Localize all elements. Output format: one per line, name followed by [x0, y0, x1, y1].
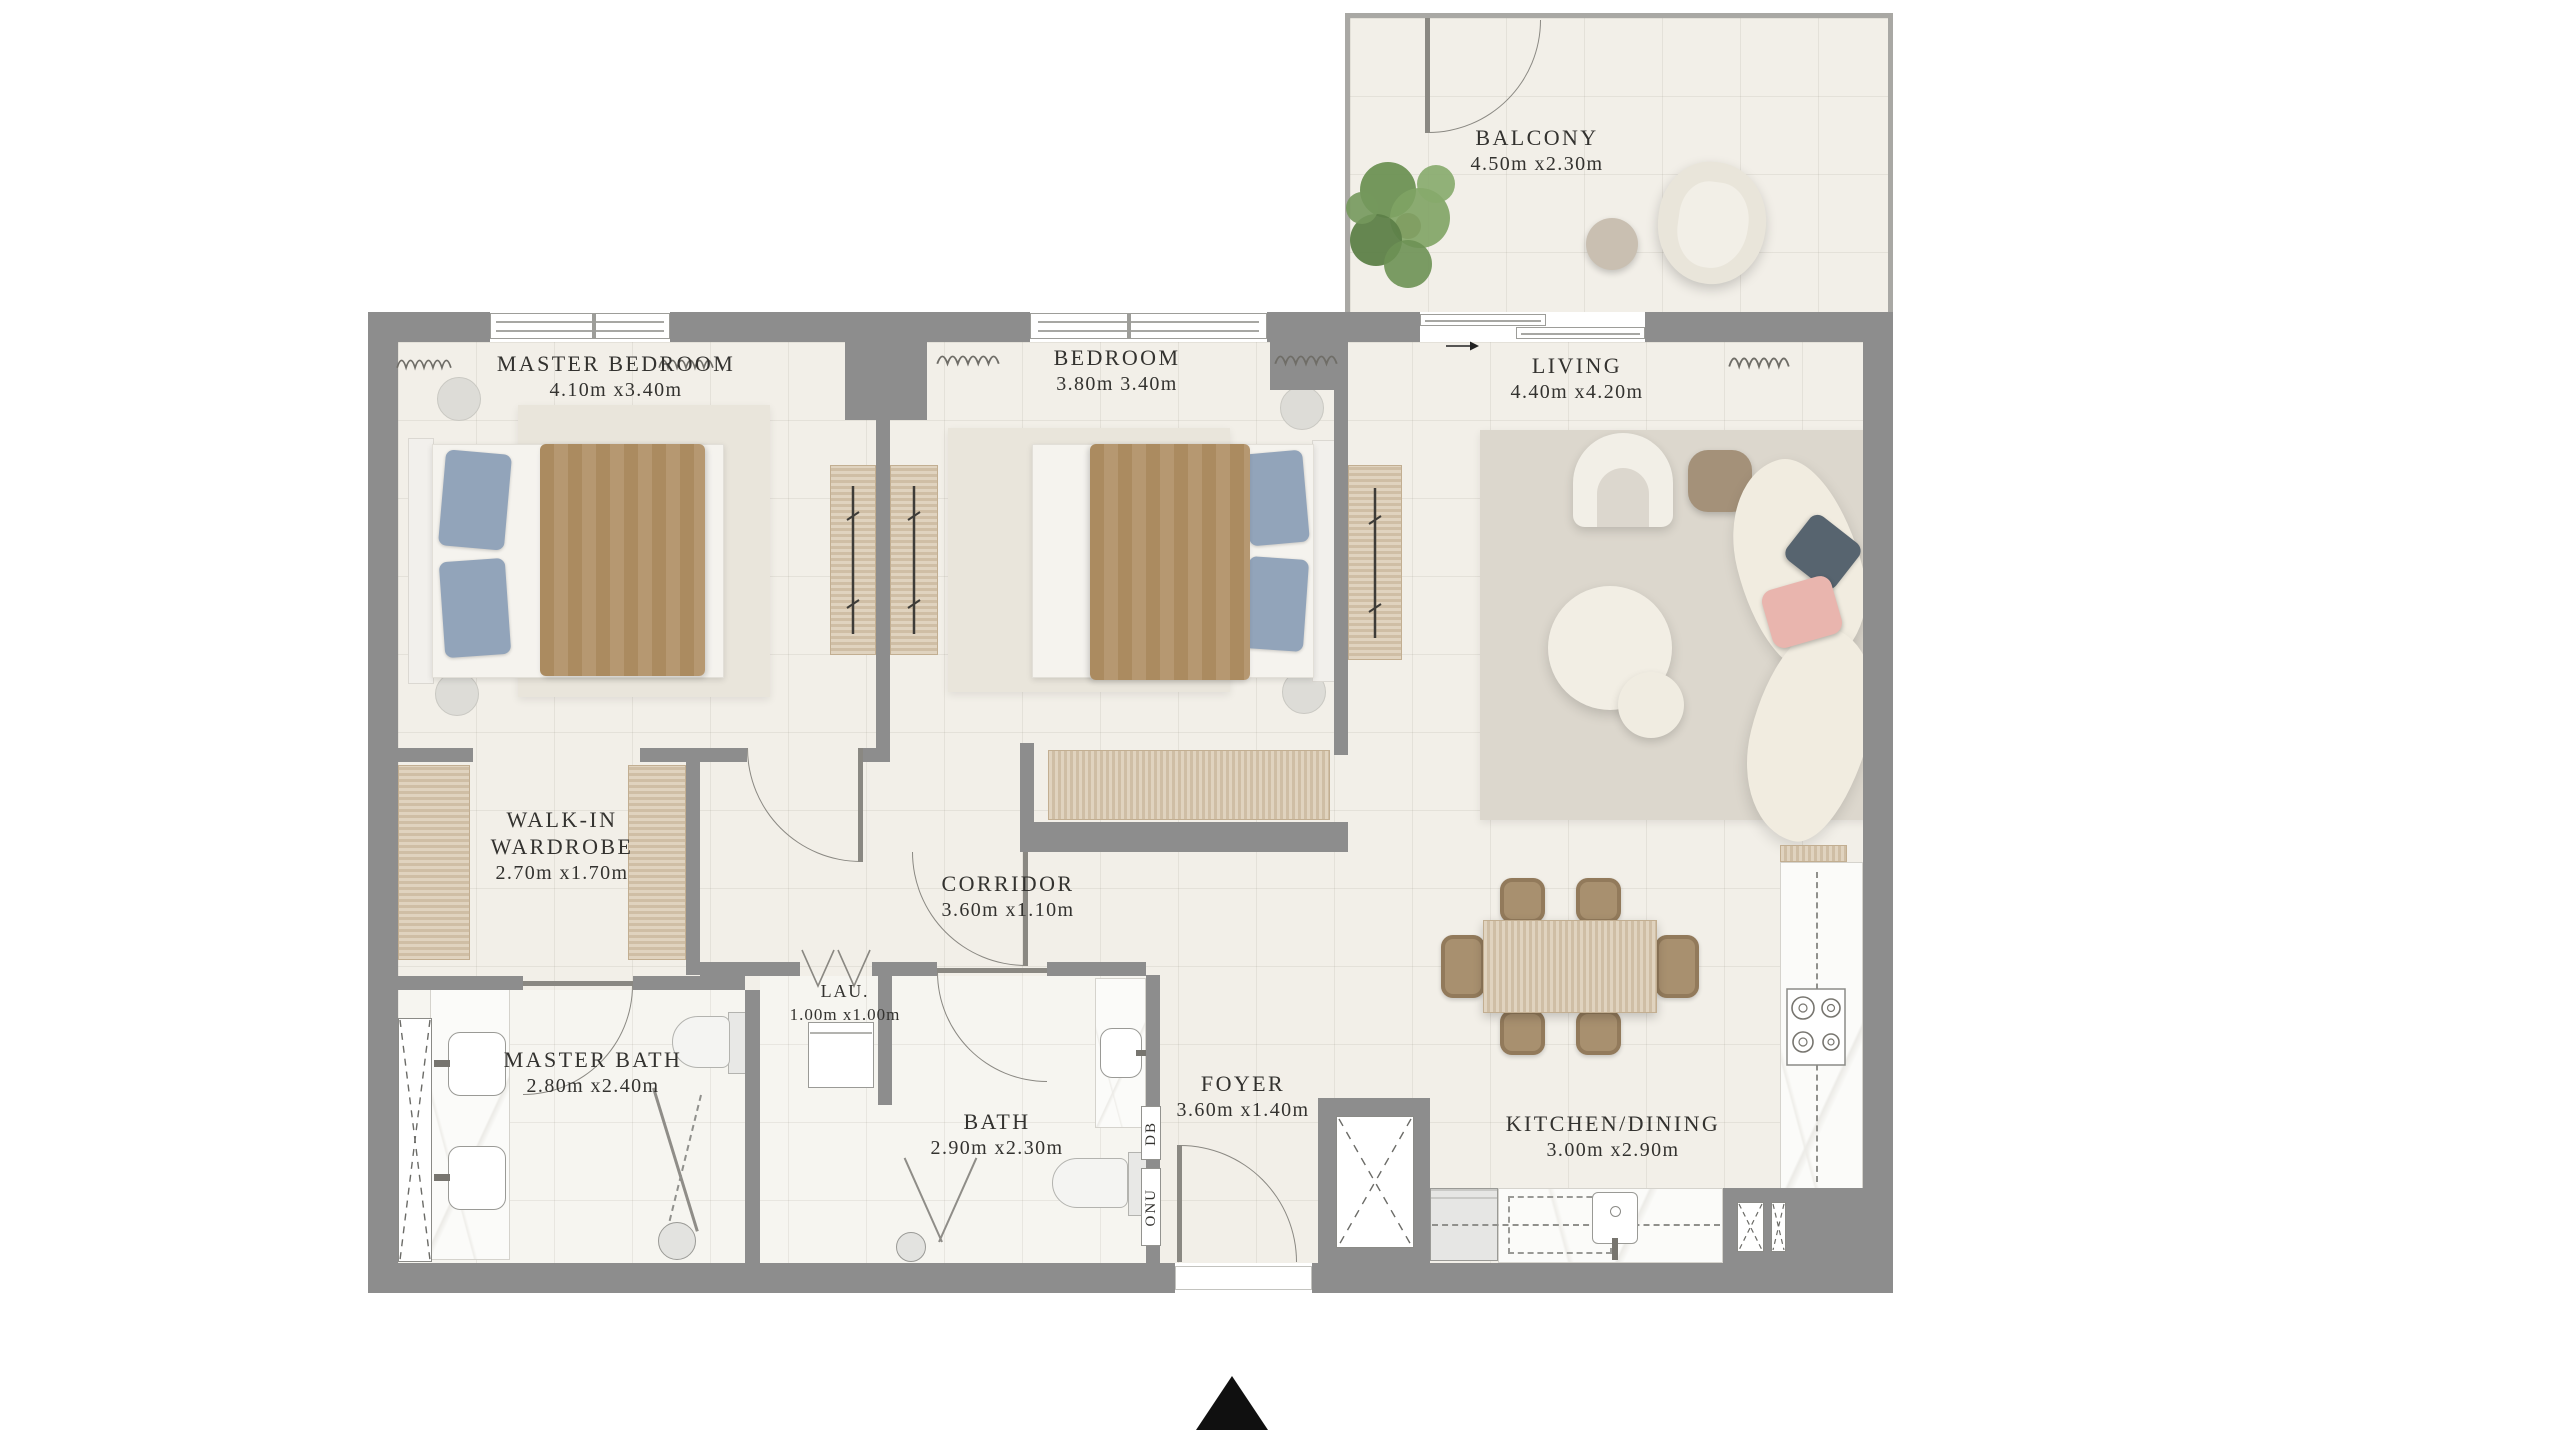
- wall-outer-bottom-left: [368, 1263, 1175, 1293]
- dining-chair-right: [1655, 935, 1699, 998]
- master-bath-sink-1: [448, 1032, 506, 1096]
- wall-corridor-south-1: [700, 962, 800, 976]
- bed-pillow-1: [1242, 450, 1310, 547]
- wall-mbath-north-1: [398, 976, 523, 990]
- dining-chair-top-1: [1500, 878, 1545, 923]
- bedroom-wardrobe-rod-icon: [907, 480, 921, 640]
- master-bedroom-window-post: [592, 313, 596, 339]
- floor-plan-page: DB ONU MASTER BEDROOM 4.10m x3.40m BEDRO…: [0, 0, 2560, 1440]
- kitchen-shaft-2-x-icon: [1771, 1202, 1786, 1252]
- wall-top-2: [670, 312, 1030, 342]
- bedside-table-top: [1280, 386, 1324, 430]
- curtain-icon-mb-left: [396, 352, 452, 370]
- wall-outer-left: [368, 312, 398, 1293]
- master-bedside-table-top: [437, 377, 481, 421]
- master-bath-faucet-1-icon: [434, 1060, 450, 1067]
- dining-table: [1483, 920, 1657, 1013]
- washing-machine-door-line: [810, 1032, 872, 1034]
- bed-headboard: [1312, 440, 1336, 682]
- laundry-bifold-door-icon: [800, 948, 874, 990]
- kitchen-counter-south-centerline: [1432, 1224, 1720, 1226]
- wall-br-living: [1334, 390, 1348, 755]
- onu-label: ONU: [1143, 1188, 1160, 1227]
- bath-shower-head-icon: [896, 1232, 926, 1262]
- foyer-shaft-x-icon: [1336, 1116, 1414, 1248]
- master-bed-pillow-1: [438, 449, 512, 550]
- master-bath-toilet-tank: [728, 1012, 746, 1074]
- north-arrow-icon: [1196, 1376, 1268, 1430]
- wall-outer-bottom-right: [1312, 1263, 1893, 1293]
- kitchen-counter-wood-cap: [1780, 845, 1847, 862]
- coffee-table-small: [1618, 672, 1684, 738]
- pier-mb-br: [845, 342, 927, 420]
- curtain-icon-br-left: [936, 348, 1000, 366]
- wiw-closet-left: [398, 765, 470, 960]
- wall-wiw-east: [686, 748, 700, 975]
- bed-blanket: [1090, 444, 1250, 680]
- wall-corridor-south-2: [872, 962, 937, 976]
- master-bedroom-window: [490, 313, 670, 339]
- db-panel: DB: [1141, 1106, 1161, 1160]
- bed-pillow-2: [1243, 556, 1309, 652]
- kitchen-sink-drain-icon: [1610, 1206, 1621, 1217]
- wiw-closet-right: [628, 765, 686, 960]
- bedroom-window: [1030, 313, 1267, 339]
- living-wardrobe-rod-icon: [1368, 482, 1382, 644]
- dining-chair-bottom-1: [1500, 1010, 1545, 1055]
- balcony-plant-icon: [1346, 148, 1466, 303]
- bedroom-console: [1048, 750, 1330, 820]
- curtain-icon-br-right: [1274, 348, 1338, 366]
- dining-chair-top-2: [1576, 878, 1621, 923]
- wall-corridor-south-3: [1047, 962, 1146, 976]
- wall-br-south-stub: [1020, 743, 1034, 852]
- bedroom-window-post: [1127, 313, 1131, 339]
- curtain-icon-living-right: [1728, 349, 1790, 369]
- kitchen-faucet-icon: [1612, 1238, 1618, 1260]
- bath-toilet-bowl: [1052, 1158, 1128, 1208]
- kitchen-sink: [1592, 1192, 1638, 1244]
- wall-mbath-east: [745, 990, 760, 1263]
- master-bath-toilet-bowl: [672, 1016, 730, 1068]
- wall-mb-br: [876, 420, 890, 762]
- master-bed-blanket: [540, 444, 705, 676]
- entry-threshold: [1175, 1266, 1312, 1290]
- wall-mb-south-1: [398, 748, 473, 762]
- balcony-slider-panel-1: [1420, 314, 1546, 326]
- dining-chair-bottom-2: [1576, 1010, 1621, 1055]
- balcony-side-table: [1586, 218, 1638, 270]
- wall-top-1: [368, 312, 490, 342]
- master-shower-head-icon: [658, 1222, 696, 1260]
- kitchen-shaft-1-x-icon: [1737, 1202, 1764, 1252]
- master-bed-pillow-2: [439, 558, 512, 658]
- stove-icon: [1786, 988, 1846, 1066]
- arch-armchair-seat: [1597, 468, 1649, 527]
- master-bath-sink-2: [448, 1146, 506, 1210]
- dining-chair-left: [1441, 935, 1485, 998]
- balcony-slider-panel-2: [1516, 327, 1645, 339]
- wall-top-3: [1267, 312, 1420, 342]
- master-wardrobe-rod-icon: [846, 480, 860, 640]
- wall-top-4: [1645, 312, 1863, 342]
- wall-outer-right: [1863, 312, 1893, 1293]
- db-label: DB: [1143, 1121, 1160, 1146]
- master-bath-shaft-x-icon: [398, 1018, 432, 1262]
- master-bath-faucet-2-icon: [434, 1174, 450, 1181]
- wall-lau-east: [878, 976, 892, 1105]
- wall-mbath-north-2: [633, 976, 745, 990]
- master-bed-headboard: [408, 438, 434, 684]
- window-direction-arrow-icon: [1446, 340, 1480, 352]
- master-bath-counter: [430, 985, 510, 1260]
- curtain-icon-mb-right: [658, 352, 714, 370]
- master-bedside-table-bottom: [435, 672, 479, 716]
- onu-panel: ONU: [1141, 1168, 1161, 1246]
- balcony-wall-right: [1888, 13, 1893, 314]
- wall-br-south: [1034, 822, 1348, 852]
